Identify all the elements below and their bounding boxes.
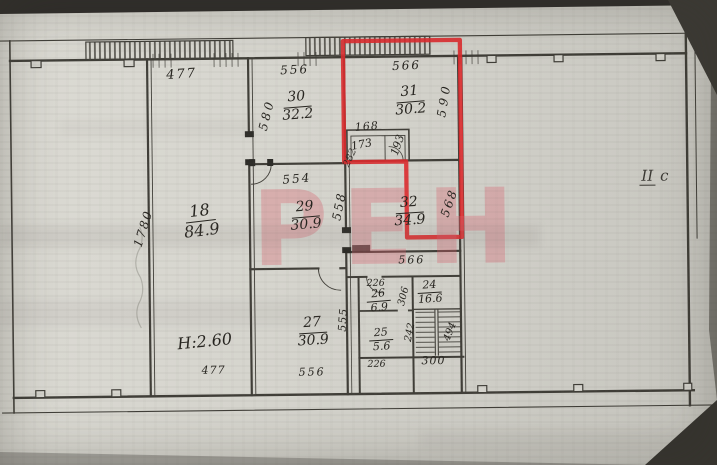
room-24-label: 24 16.6 <box>417 278 443 306</box>
dim-closet-top: 168 <box>354 120 379 133</box>
dim-r27-bottom: 556 <box>299 366 326 377</box>
floor-suffix: с <box>660 166 669 184</box>
room-24-area: 16.6 <box>418 293 443 307</box>
dim-r32-bottom: 566 <box>398 254 425 265</box>
room-26-label: 26 6.9 <box>366 287 392 315</box>
dim-r18-bottom: 477 <box>201 365 225 376</box>
room-27-area: 30.9 <box>297 332 329 350</box>
room-31-area: 30.2 <box>395 101 427 119</box>
dim-r27-right: 555 <box>337 307 350 332</box>
room-27-label: 27 30.9 <box>296 315 329 350</box>
floor-section-label: II с <box>639 166 668 184</box>
dim-r30-top: 556 <box>280 63 309 76</box>
dim-top-477: 477 <box>166 67 198 82</box>
floor-plan: РЕН 477 556 566 590 580 168 173 193 282 … <box>0 0 717 465</box>
room-18-label: 18 84.9 <box>181 200 221 242</box>
room-29-area: 30.9 <box>290 216 322 234</box>
scanned-floor-plan-photo: РЕН 477 556 566 590 580 168 173 193 282 … <box>0 0 717 465</box>
floor-roman: II <box>639 167 655 186</box>
room-29-label: 29 30.9 <box>289 198 323 234</box>
dim-r29-top: 554 <box>282 172 312 186</box>
room-30-label: 30 32.2 <box>280 88 314 124</box>
room-26-area: 6.9 <box>367 301 392 315</box>
room-25-area: 5.6 <box>369 340 394 354</box>
room-30-area: 32.2 <box>282 106 314 124</box>
room-32-area: 34.9 <box>394 212 426 230</box>
room-31-label: 31 30.2 <box>393 83 427 119</box>
dim-stair-width: 300 <box>421 355 445 366</box>
room-32-label: 32 34.9 <box>393 194 426 229</box>
dim-r25-bottom: 226 <box>367 360 385 370</box>
dim-r31-top: 566 <box>392 59 421 72</box>
room-25-label: 25 5.6 <box>368 326 394 354</box>
floor-plan-lines <box>0 0 717 465</box>
